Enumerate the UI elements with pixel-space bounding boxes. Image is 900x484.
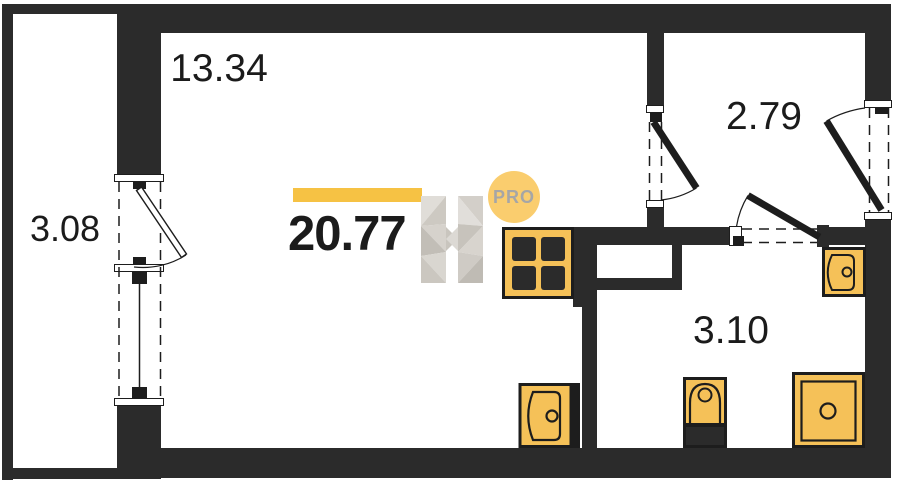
floor-plan: 3.08 13.34 2.79 3.10 20.77 PRO: [0, 0, 900, 484]
kitchen-sink-icon: [520, 383, 580, 448]
bathroom-sink-icon: [824, 249, 865, 296]
bathroom-door-leaf: [748, 196, 820, 238]
developer-logo-watermark: [421, 196, 483, 283]
living-room-area-label: 13.34: [160, 49, 278, 88]
shower-icon: [794, 374, 864, 447]
balcony-door-leaf: [137, 187, 187, 258]
balcony-area-label: 3.08: [13, 211, 117, 247]
stove-icon: [504, 229, 573, 298]
hall-door-swing-arc: [661, 188, 697, 200]
pro-badge-label: PRO: [493, 187, 535, 208]
pro-badge: PRO: [488, 171, 540, 223]
bathroom-area-label: 3.10: [597, 311, 865, 350]
toilet-icon: [685, 379, 726, 447]
total-area-value: 20.77: [288, 210, 428, 259]
total-area-accent-bar: [293, 188, 422, 202]
bathroom-door-swing-arc: [737, 196, 749, 227]
hallway-area-label: 2.79: [663, 97, 865, 136]
